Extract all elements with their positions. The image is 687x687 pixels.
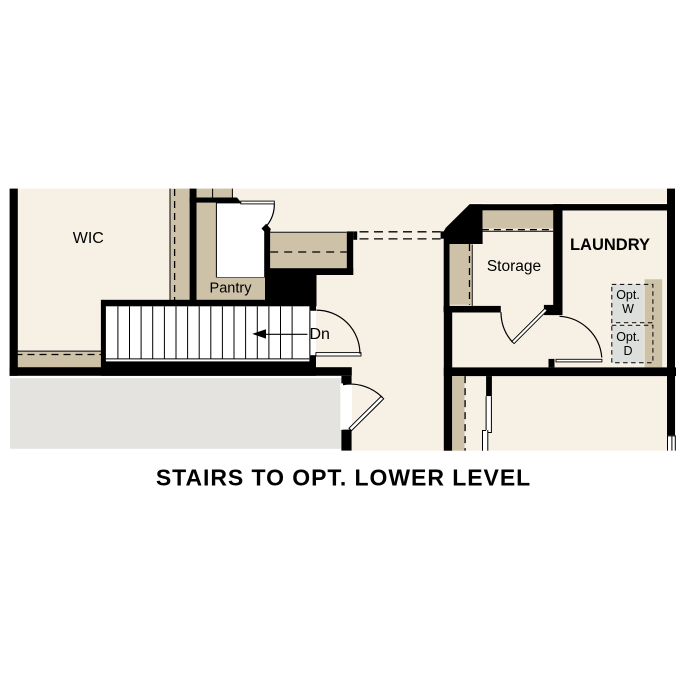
svg-text:Storage: Storage [487, 258, 541, 275]
svg-text:Opt.: Opt. [616, 288, 640, 302]
svg-text:STAIRS TO OPT. LOWER LEVEL: STAIRS TO OPT. LOWER LEVEL [156, 465, 531, 491]
svg-text:Opt.: Opt. [616, 330, 640, 344]
svg-text:Dn: Dn [310, 326, 330, 343]
svg-text:D: D [623, 344, 632, 358]
svg-text:W: W [622, 302, 634, 316]
svg-text:Pantry: Pantry [210, 281, 253, 297]
svg-text:LAUNDRY: LAUNDRY [570, 236, 650, 254]
svg-text:WIC: WIC [73, 230, 104, 247]
